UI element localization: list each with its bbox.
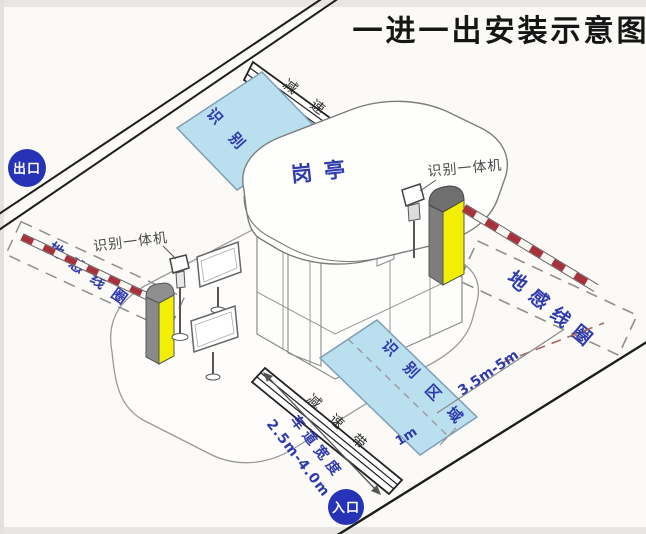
page-title: 一进一出安装示意图	[353, 14, 646, 49]
barrier-machine-exit-side	[146, 297, 159, 364]
barrier-machine-entry-front	[443, 200, 464, 285]
barrier-machine-exit-front	[159, 295, 174, 364]
top-border	[0, 0, 646, 7]
entry-badge: 入口	[328, 489, 364, 525]
camera-exit-bracket	[176, 271, 185, 288]
camera-entry-bracket	[408, 203, 420, 221]
barrier-machine-entry-side	[429, 205, 443, 285]
exit-badge: 出口	[8, 149, 46, 187]
diagram-canvas: 减速带 识别区域 地感线圈 识别一体机	[0, 0, 646, 534]
sign-front-base	[206, 374, 220, 380]
barrier-machine-entry	[429, 186, 464, 285]
exit-badge-label: 出口	[13, 161, 41, 177]
installation-diagram: 减速带 识别区域 地感线圈 识别一体机	[0, 0, 646, 534]
left-border	[0, 0, 4, 534]
bottom-border	[0, 527, 646, 534]
camera-exit-base	[172, 334, 188, 341]
entry-badge-label: 入口	[332, 501, 360, 516]
barrier-machine-exit	[146, 283, 174, 364]
